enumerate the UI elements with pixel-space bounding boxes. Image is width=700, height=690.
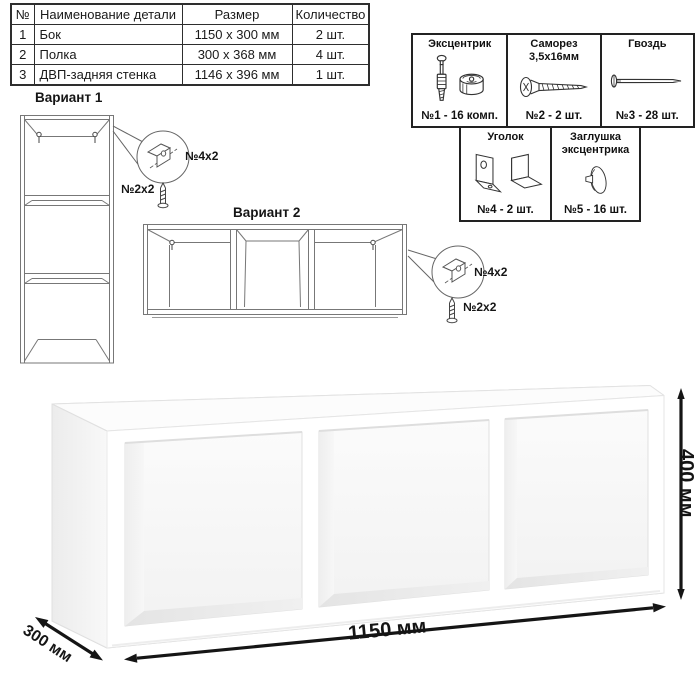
variant2-bracket-quantity-label: №4х2 <box>474 265 507 279</box>
hardware-count: №4 - 2 шт. <box>477 204 533 220</box>
part-number: 1 <box>11 25 34 45</box>
hardware-cell-eccentric: Эксцентрик № <box>413 35 506 126</box>
height-dimension-label: 400 мм <box>674 449 697 518</box>
variant2-drawing <box>144 225 407 318</box>
hardware-box-row1: Эксцентрик № <box>411 33 695 128</box>
cam-cap-icon <box>576 158 616 202</box>
hardware-cell-screw: Саморез 3,5х16мм №2 - 2 шт. <box>506 35 599 126</box>
hardware-subtitle: эксцентрика <box>562 144 630 157</box>
compartment-opening <box>319 420 489 607</box>
back-screw-icon <box>170 240 375 250</box>
col-header-part-name: Наименование детали <box>34 4 182 25</box>
hardware-count: №2 - 2 шт. <box>526 110 582 126</box>
part-quantity: 2 шт. <box>292 25 369 45</box>
back-screw-icon <box>37 132 97 143</box>
hardware-box-row2: Уголок №4 - 2 шт. Заглушка эксцентрика <box>459 126 641 222</box>
variant2-screw-quantity-label: №2х2 <box>463 300 496 314</box>
hardware-cell-corner-bracket: Уголок №4 - 2 шт. <box>461 128 550 220</box>
part-number: 3 <box>11 65 34 86</box>
shelf-3d-render <box>52 386 664 649</box>
hardware-title: Эксцентрик <box>428 35 491 51</box>
parts-table-header-row: № Наименование детали Размер Количество <box>11 4 369 25</box>
hardware-title: Саморез <box>530 35 577 51</box>
assembly-instruction-sheet: № Наименование детали Размер Количество … <box>0 0 700 690</box>
compartment-opening <box>505 410 648 589</box>
eccentric-icon <box>425 53 495 109</box>
hardware-count: №5 - 16 шт. <box>564 204 627 220</box>
part-quantity: 4 шт. <box>292 45 369 65</box>
screw-detail-icon <box>158 183 168 208</box>
col-header-size: Размер <box>182 4 292 25</box>
part-name: ДВП-задняя стенка <box>34 65 182 86</box>
hardware-title: Заглушка <box>570 128 621 144</box>
table-row: 3 ДВП-задняя стенка 1146 х 396 мм 1 шт. <box>11 65 369 86</box>
hardware-title: Гвоздь <box>628 35 666 51</box>
part-size: 300 х 368 мм <box>182 45 292 65</box>
hardware-cell-cam-cap: Заглушка эксцентрика №5 - 16 шт. <box>550 128 639 220</box>
part-size: 1146 х 396 мм <box>182 65 292 86</box>
part-quantity: 1 шт. <box>292 65 369 86</box>
variant1-bracket-quantity-label: №4х2 <box>185 149 218 163</box>
table-row: 2 Полка 300 х 368 мм 4 шт. <box>11 45 369 65</box>
nail-icon <box>607 71 687 91</box>
corner-bracket-icon <box>464 147 548 201</box>
part-name: Бок <box>34 25 182 45</box>
hardware-count: №1 - 16 комп. <box>421 110 498 126</box>
hardware-subtitle: 3,5х16мм <box>529 51 579 64</box>
hardware-count: №3 - 28 шт. <box>616 110 679 126</box>
hardware-cell-nail: Гвоздь №3 - 28 шт. <box>600 35 693 126</box>
part-number: 2 <box>11 45 34 65</box>
hardware-title: Уголок <box>487 128 523 144</box>
variant1-drawing <box>21 116 114 364</box>
variant1-screw-quantity-label: №2х2 <box>121 182 154 196</box>
compartment-opening <box>125 432 302 626</box>
screw-icon <box>517 72 591 102</box>
table-row: 1 Бок 1150 х 300 мм 2 шт. <box>11 25 369 45</box>
screw-detail-icon <box>447 298 457 323</box>
parts-table: № Наименование детали Размер Количество … <box>10 3 370 86</box>
col-header-quantity: Количество <box>292 4 369 25</box>
variant1-title: Вариант 1 <box>35 90 102 105</box>
part-name: Полка <box>34 45 182 65</box>
col-header-number: № <box>11 4 34 25</box>
part-size: 1150 х 300 мм <box>182 25 292 45</box>
variant2-title: Вариант 2 <box>233 205 300 220</box>
